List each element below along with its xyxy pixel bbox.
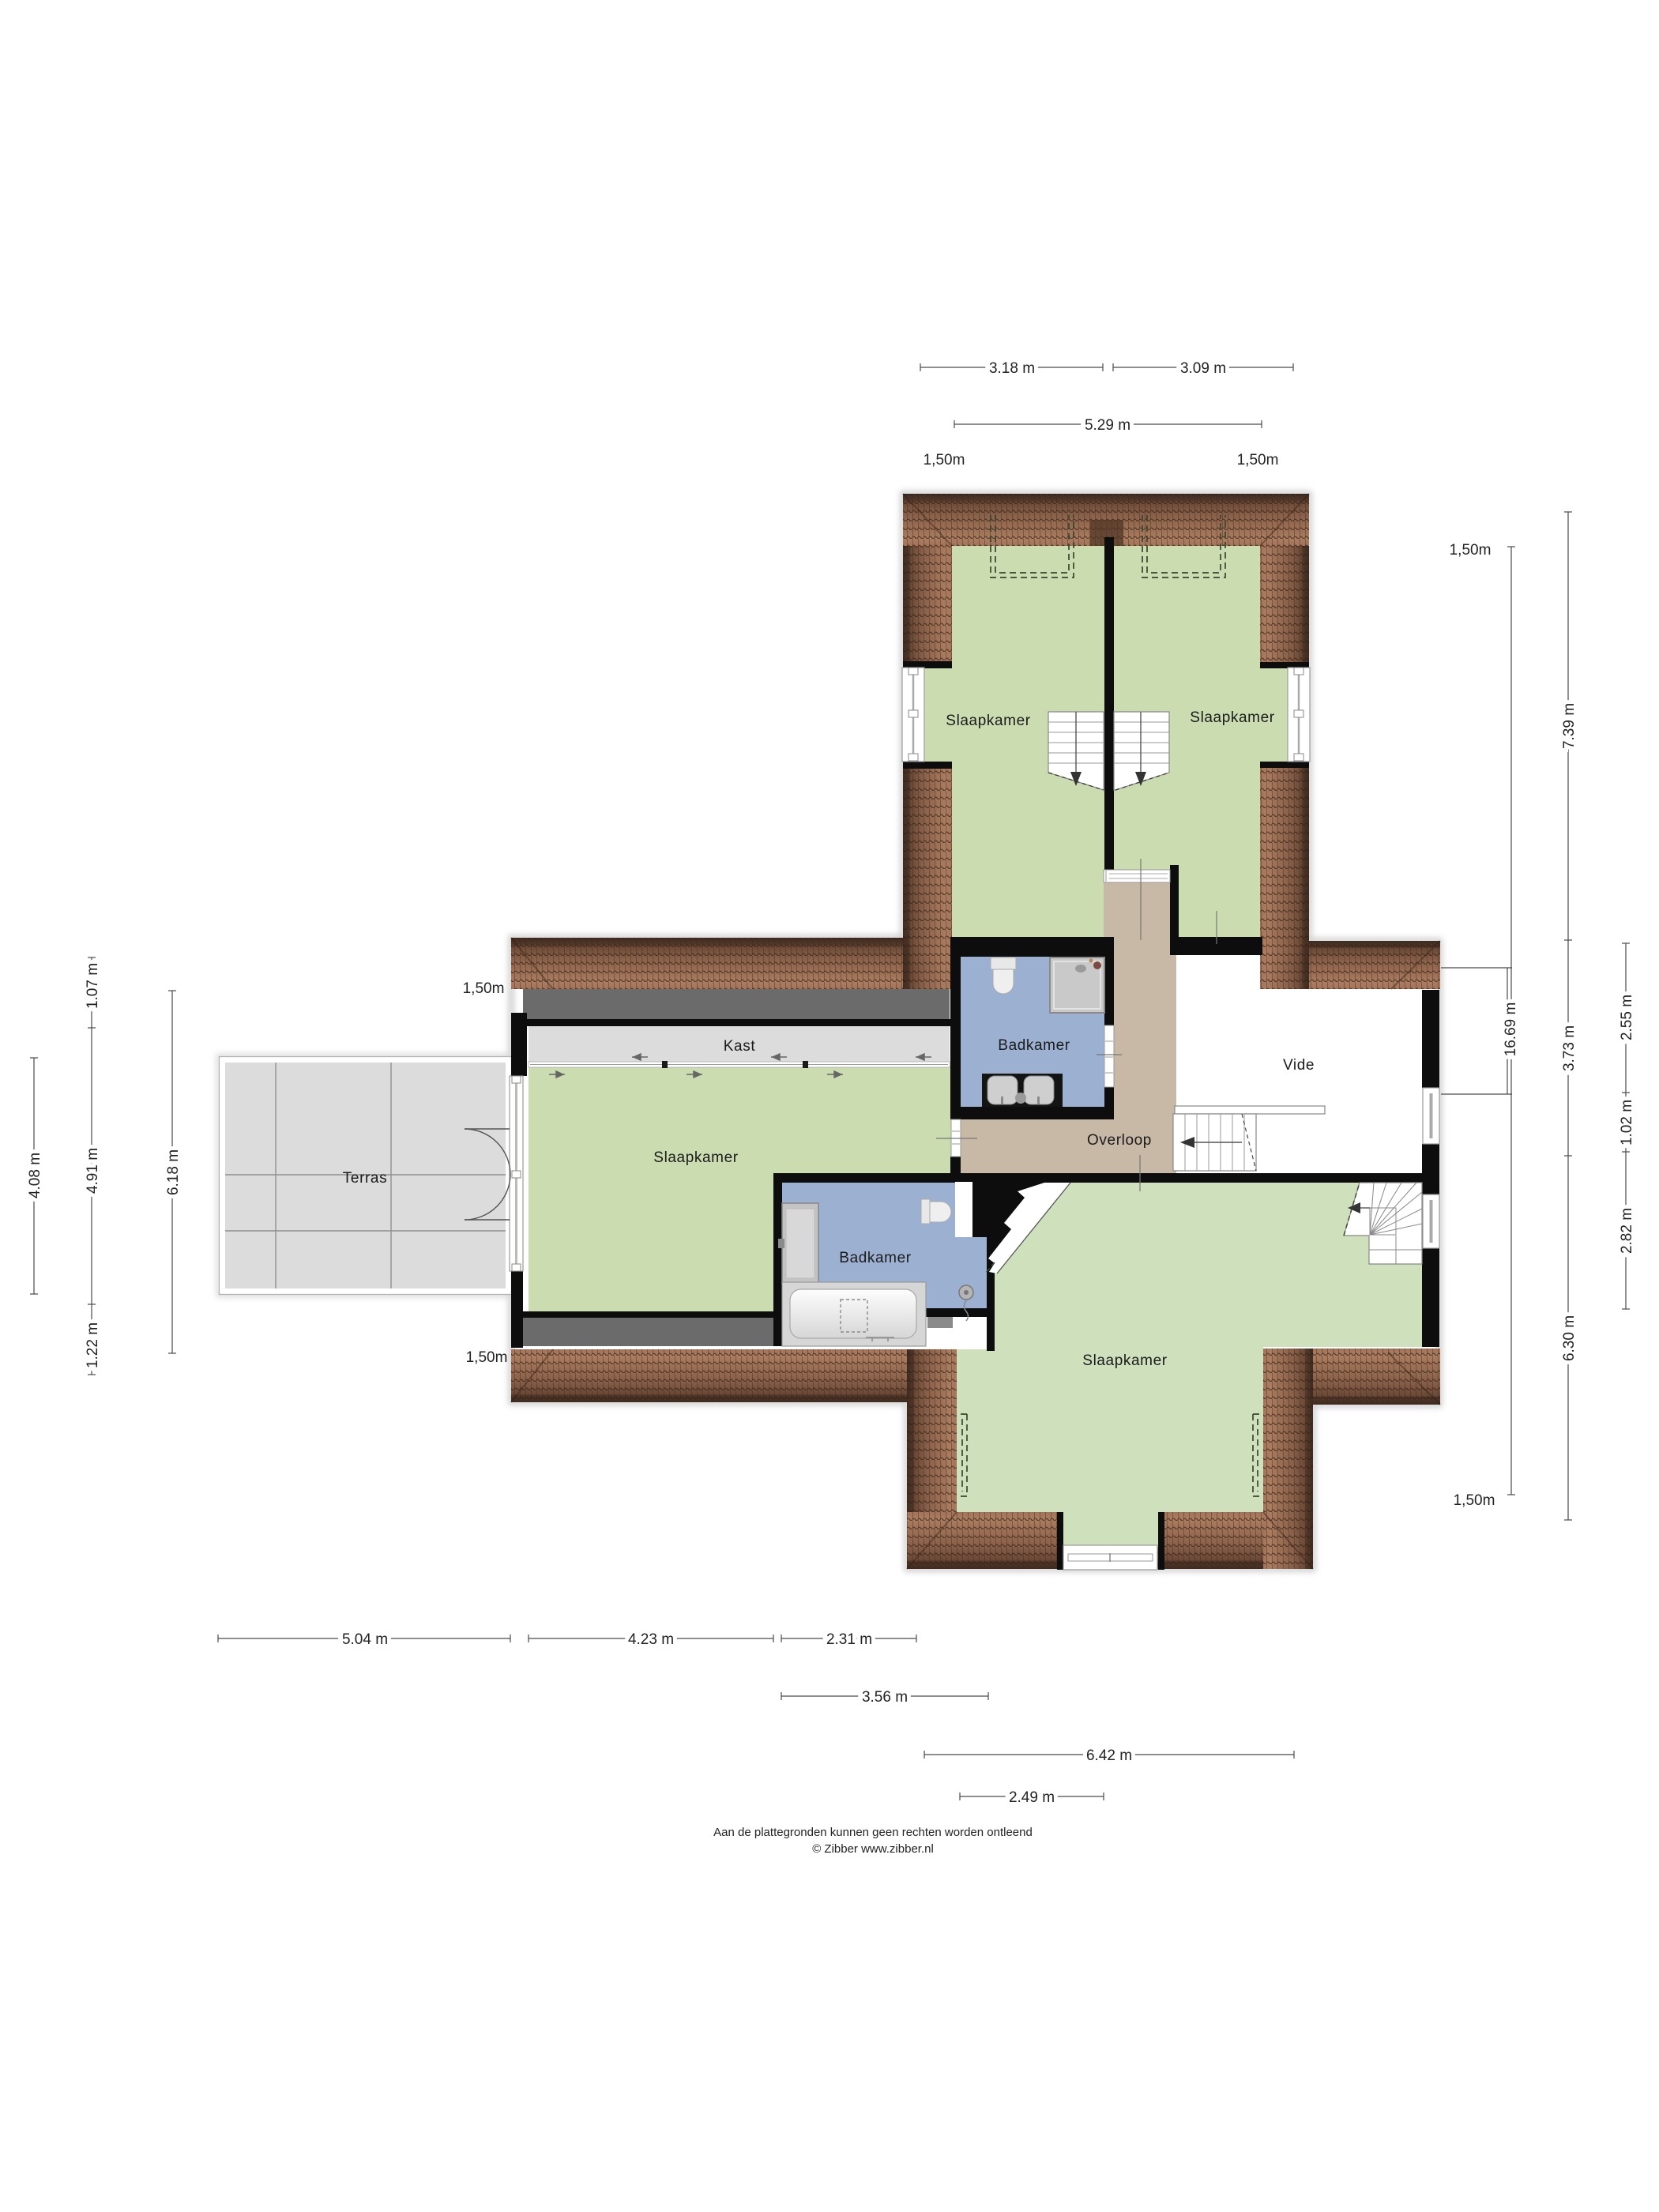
svg-text:1,50m: 1,50m — [1454, 1492, 1495, 1509]
svg-text:1,50m: 1,50m — [1237, 452, 1279, 468]
svg-text:Badkamer: Badkamer — [998, 1037, 1070, 1054]
svg-text:2.49 m: 2.49 m — [1009, 1789, 1055, 1806]
svg-text:Aan de plattegronden kunnen ge: Aan de plattegronden kunnen geen rechten… — [713, 1826, 1033, 1839]
svg-text:1,50m: 1,50m — [463, 980, 505, 997]
svg-text:6.30 m: 6.30 m — [1561, 1315, 1578, 1361]
svg-text:1.22 m: 1.22 m — [85, 1322, 101, 1368]
svg-text:1,50m: 1,50m — [466, 1349, 508, 1366]
svg-text:1,50m: 1,50m — [924, 452, 965, 468]
svg-text:3.56 m: 3.56 m — [862, 1689, 908, 1706]
svg-text:Slaapkamer: Slaapkamer — [1082, 1352, 1167, 1369]
svg-text:Badkamer: Badkamer — [839, 1250, 911, 1266]
svg-text:2.82 m: 2.82 m — [1619, 1208, 1635, 1254]
svg-text:5.29 m: 5.29 m — [1085, 417, 1130, 434]
svg-text:16.69 m: 16.69 m — [1503, 1003, 1519, 1057]
svg-text:Terras: Terras — [343, 1170, 387, 1187]
svg-text:Kast: Kast — [724, 1038, 756, 1055]
svg-text:4.08 m: 4.08 m — [27, 1153, 43, 1198]
svg-text:1,50m: 1,50m — [1450, 542, 1492, 559]
svg-text:Slaapkamer: Slaapkamer — [653, 1149, 738, 1166]
svg-text:Overloop: Overloop — [1087, 1132, 1152, 1149]
svg-text:1.02 m: 1.02 m — [1619, 1100, 1635, 1145]
svg-text:1.07 m: 1.07 m — [85, 963, 101, 1009]
svg-text:6.18 m: 6.18 m — [165, 1149, 182, 1195]
svg-text:2.31 m: 2.31 m — [826, 1631, 872, 1648]
svg-text:5.04 m: 5.04 m — [342, 1631, 388, 1648]
svg-text:3.09 m: 3.09 m — [1180, 360, 1226, 377]
svg-text:6.42 m: 6.42 m — [1086, 1747, 1132, 1764]
svg-text:3.18 m: 3.18 m — [989, 360, 1035, 377]
svg-text:7.39 m: 7.39 m — [1561, 703, 1578, 749]
svg-text:4.91 m: 4.91 m — [85, 1148, 101, 1194]
svg-text:Vide: Vide — [1283, 1057, 1315, 1074]
svg-text:© Zibber www.zibber.nl: © Zibber www.zibber.nl — [812, 1842, 934, 1856]
svg-text:3.73 m: 3.73 m — [1561, 1025, 1578, 1071]
svg-text:Slaapkamer: Slaapkamer — [1190, 709, 1274, 726]
svg-text:Slaapkamer: Slaapkamer — [946, 713, 1030, 729]
svg-text:4.23 m: 4.23 m — [628, 1631, 674, 1648]
svg-text:2.55 m: 2.55 m — [1619, 995, 1635, 1040]
